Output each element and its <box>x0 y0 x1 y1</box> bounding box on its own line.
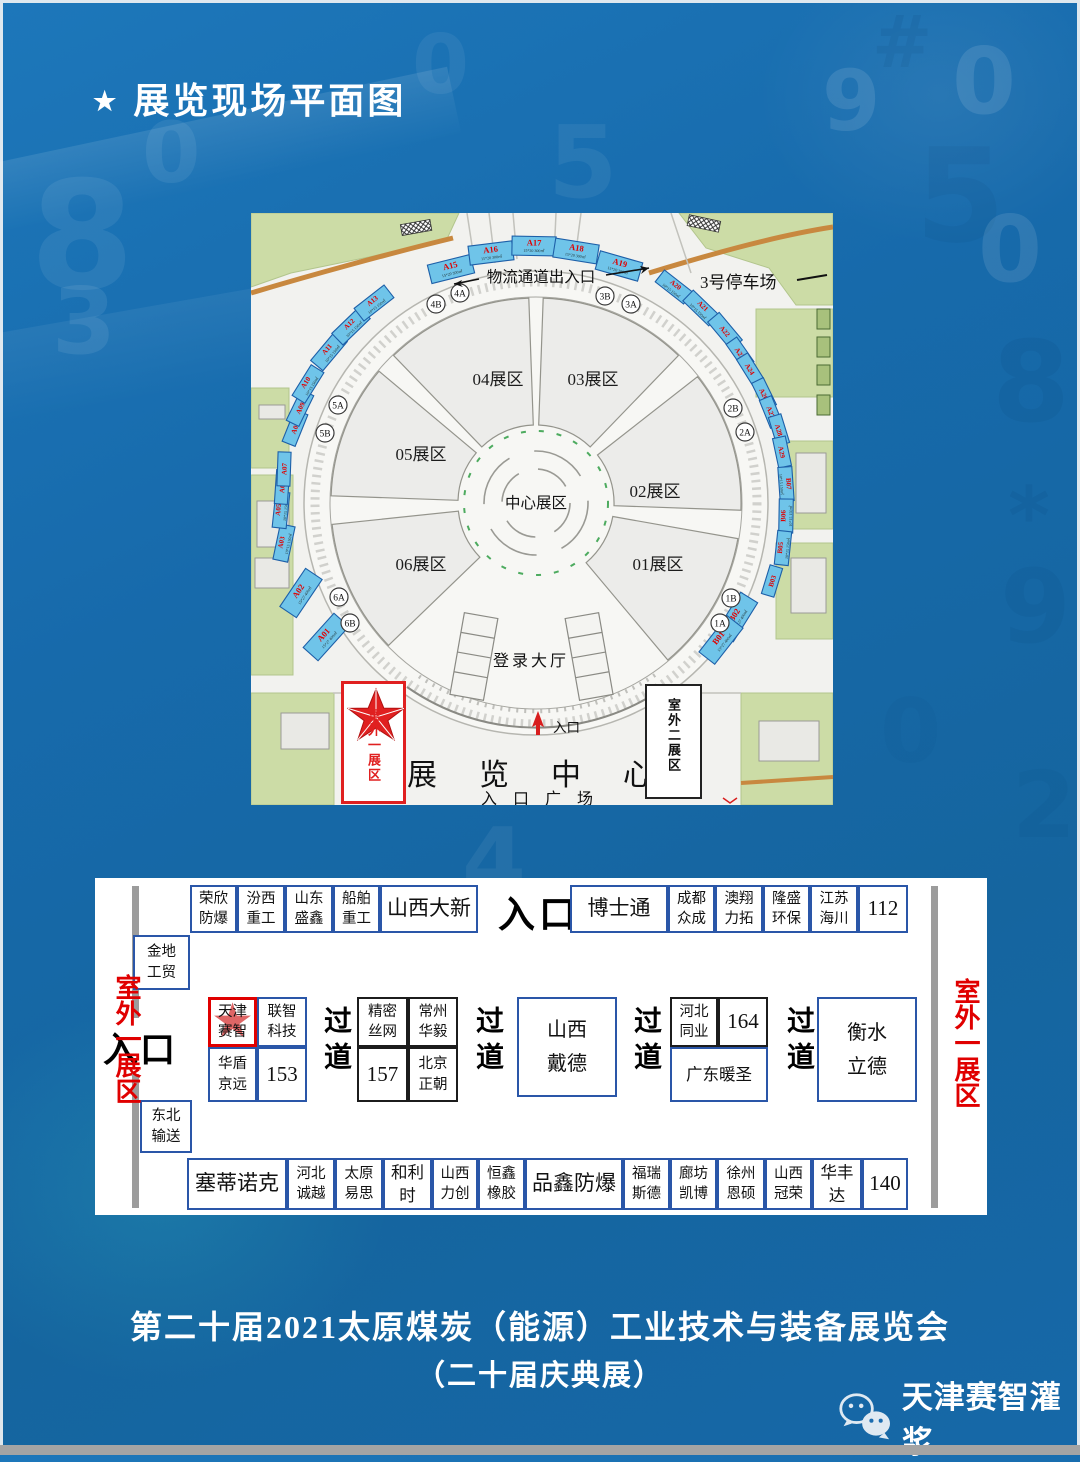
background-digit: 0 <box>880 680 941 783</box>
booth-cell-112: 112 <box>858 885 908 933</box>
outdoor-area2-label: 室外二展区 <box>664 698 683 790</box>
svg-text:B06: B06 <box>779 510 787 522</box>
booth-cell-164: 164 <box>718 997 768 1047</box>
booth-cell-成都众成: 成都 众成 <box>668 885 715 933</box>
aisle-label: 过道 <box>625 1006 665 1078</box>
map-entrance-label: 入口 <box>553 720 580 735</box>
booth-B06: B0610*15 150㎡ <box>779 499 794 533</box>
booth-A17: A1715*20 300㎡ <box>512 236 556 256</box>
gate-2A: 2A <box>736 423 754 441</box>
booth-cell-和利时: 和利时 <box>383 1158 432 1210</box>
background-digit: 8 <box>992 318 1070 448</box>
gate-6A: 6A <box>330 588 348 606</box>
wechat-watermark: 天津赛智灌浆 <box>838 1388 1080 1446</box>
aisle-label: 过道 <box>467 1006 507 1078</box>
booth-cell-塞蒂诺克: 塞蒂诺克 <box>187 1158 287 1210</box>
booth-A16: A1615*20 300㎡ <box>468 241 514 265</box>
gate-5A: 5A <box>329 396 347 414</box>
logistics-entrance-label: 物流通道出入口 <box>487 268 596 286</box>
background-digit: 0 <box>412 18 469 113</box>
svg-text:3B: 3B <box>599 292 610 302</box>
outdoor-left-label: 室外一展区 <box>108 974 145 1116</box>
booth-cell-广东暖圣: 广东暖圣 <box>670 1047 768 1102</box>
parking-label: 3号停车场 <box>700 273 777 292</box>
zone-label-05展区: 05展区 <box>396 445 447 464</box>
background-digit: 5 <box>548 104 618 221</box>
zone-label-03展区: 03展区 <box>568 370 619 389</box>
booth-cell-北京正朝: 北京 正朝 <box>408 1047 458 1102</box>
background-digit: 0 <box>952 28 1016 135</box>
booth-cell-福瑞斯德: 福瑞 斯德 <box>623 1158 670 1210</box>
booth-table-panel: 室外一展区 入口 入口 室外一展区 荣欣 防爆汾西 重工山东 盛鑫船舶 重工山西… <box>95 878 987 1215</box>
booth-cell-船舶重工: 船舶 重工 <box>333 885 380 933</box>
gate-4A: 4A <box>451 284 469 302</box>
outdoor-area1-label: 室外一展区 <box>364 708 383 804</box>
zone-label-02展区: 02展区 <box>630 482 681 501</box>
gate-5B: 5B <box>316 424 334 442</box>
booth-cell-山西力创: 山西 力创 <box>432 1158 478 1210</box>
zone-label-01展区: 01展区 <box>633 555 684 574</box>
gate-1B: 1B <box>722 589 740 607</box>
gate-3B: 3B <box>596 287 614 305</box>
aisle-label: 过道 <box>315 1006 355 1078</box>
booth-cell-河北诚越: 河北 诚越 <box>287 1158 335 1210</box>
background-digit: 0 <box>978 196 1042 303</box>
booth-cell-汾西重工: 汾西 重工 <box>237 885 285 933</box>
booth-cell-徐州恩硕: 徐州 恩硕 <box>717 1158 765 1210</box>
svg-text:A07: A07 <box>280 462 288 475</box>
booth-A13: A1310*15 150㎡ <box>354 285 394 321</box>
booth-cell-山西冠荣: 山西 冠荣 <box>765 1158 812 1210</box>
venue-map: 04展区03展区05展区02展区06展区01展区 A0115*27 400㎡A0… <box>251 213 833 805</box>
background-digit: 9 <box>1000 548 1071 667</box>
svg-text:2A: 2A <box>739 428 751 438</box>
gate-1A: 1A <box>711 614 729 632</box>
booth-cell-华丰达: 华丰达 <box>812 1158 862 1210</box>
booth-cell-山西大新: 山西大新 <box>380 885 478 933</box>
zone-label-06展区: 06展区 <box>396 555 447 574</box>
booth-cell-太原易思: 太原 易思 <box>335 1158 383 1210</box>
login-hall-label: 登录大厅 <box>493 652 569 670</box>
booth-cell-江苏海川: 江苏 海川 <box>810 885 858 933</box>
background-digit: 8 <box>30 150 134 324</box>
svg-text:6B: 6B <box>344 619 355 629</box>
wechat-icon <box>838 1390 894 1444</box>
booth-A07: A07 <box>277 452 291 486</box>
booth-cell-荣欣防爆: 荣欣 防爆 <box>190 885 237 933</box>
booth-cell-衡水立德: 衡水 立德 <box>817 997 917 1102</box>
top-entrance-label: 入口 <box>498 884 580 938</box>
booth-cell-廊坊凯博: 廊坊 凯博 <box>670 1158 717 1210</box>
booth-cell-山东盛鑫: 山东 盛鑫 <box>285 885 333 933</box>
background-digit: * <box>1008 470 1050 563</box>
page-title: ★展览现场平面图 <box>93 72 406 124</box>
svg-text:2B: 2B <box>727 404 738 414</box>
booth-cell-隆盛环保: 隆盛 环保 <box>763 885 810 933</box>
zone-label-04展区: 04展区 <box>473 370 524 389</box>
background-digit: 9 <box>822 52 880 150</box>
gate-4B: 4B <box>427 295 445 313</box>
booth-cell-澳翔力拓: 澳翔 力拓 <box>715 885 763 933</box>
svg-text:A17: A17 <box>527 237 543 247</box>
entrance-plaza-label: 入口广场 <box>481 790 609 805</box>
svg-text:4B: 4B <box>430 300 441 310</box>
wechat-article-image: { "page": { "title_star": "★", "title": … <box>0 0 1080 1455</box>
gate-3A: 3A <box>622 295 640 313</box>
booth-cell-博士通: 博士通 <box>570 885 668 933</box>
star-icon: ★ <box>93 87 119 116</box>
outdoor-area1-box: 室外一展区 <box>341 681 406 804</box>
svg-text:1A: 1A <box>714 619 726 629</box>
svg-text:5B: 5B <box>319 429 330 439</box>
red-chevron <box>723 798 737 803</box>
booth-cell-常州华毅: 常州 华毅 <box>408 997 458 1047</box>
svg-text:5A: 5A <box>332 401 344 411</box>
booth-A15: A1515*20 300㎡ <box>427 254 474 283</box>
svg-text:3A: 3A <box>625 300 637 310</box>
booth-cell-山西戴德: 山西 戴德 <box>517 997 617 1097</box>
booth-cell-恒鑫橡胶: 恒鑫 橡胶 <box>478 1158 525 1210</box>
booth-cell-品鑫防爆: 品鑫防爆 <box>525 1158 623 1210</box>
booth-cell-157: 157 <box>357 1047 408 1102</box>
footer-title-line1: 第二十届2021太原煤炭（能源）工业技术与装备展览会 <box>0 1302 1080 1348</box>
booth-cell-140: 140 <box>862 1158 908 1210</box>
booth-B05: B0510*15 150㎡ <box>774 530 791 565</box>
booth-B07: B0710*15 150㎡ <box>778 467 794 502</box>
divider-bar <box>931 886 938 1208</box>
svg-text:4A: 4A <box>454 289 466 299</box>
background-digit: 3 <box>52 268 116 375</box>
bottom-gray-strip <box>0 1445 1080 1455</box>
aisle-label: 过道 <box>778 1006 818 1078</box>
booth-A19: A1915*20 300㎡ <box>595 251 643 281</box>
background-digit: 5 <box>915 120 1005 272</box>
booth-cell-天津赛智: ★天津 赛智 <box>208 997 257 1047</box>
gate-2B: 2B <box>724 399 742 417</box>
booth-cell-东北输送: 东北 输送 <box>140 1100 192 1153</box>
outdoor-right-label: 室外一展区 <box>947 978 984 1114</box>
svg-text:1B: 1B <box>725 594 736 604</box>
svg-text:15*20 300㎡: 15*20 300㎡ <box>523 247 544 253</box>
outdoor-area2-box: 室外二展区 <box>645 684 702 799</box>
venue-map-panel: 04展区03展区05展区02展区06展区01展区 A0115*27 400㎡A0… <box>251 213 833 803</box>
svg-text:10*15 150㎡: 10*15 150㎡ <box>787 506 793 527</box>
booth-cell-153: 153 <box>257 1047 307 1102</box>
booth-A10: A1010*15 150㎡ <box>292 365 324 403</box>
center-zone-label: 中心展区 <box>505 494 567 512</box>
background-digit: # <box>872 0 932 84</box>
gate-6B: 6B <box>341 614 359 632</box>
booth-cell-精密丝网: 精密 丝网 <box>357 997 408 1047</box>
booth-A18: A1815*20 300㎡ <box>553 238 599 264</box>
svg-text:B07: B07 <box>784 478 793 491</box>
background-digit: 2 <box>1012 752 1076 859</box>
booth-cell-联智科技: 联智 科技 <box>257 997 307 1047</box>
booth-cell-河北同业: 河北 同业 <box>670 997 718 1047</box>
svg-text:6A: 6A <box>333 593 345 603</box>
